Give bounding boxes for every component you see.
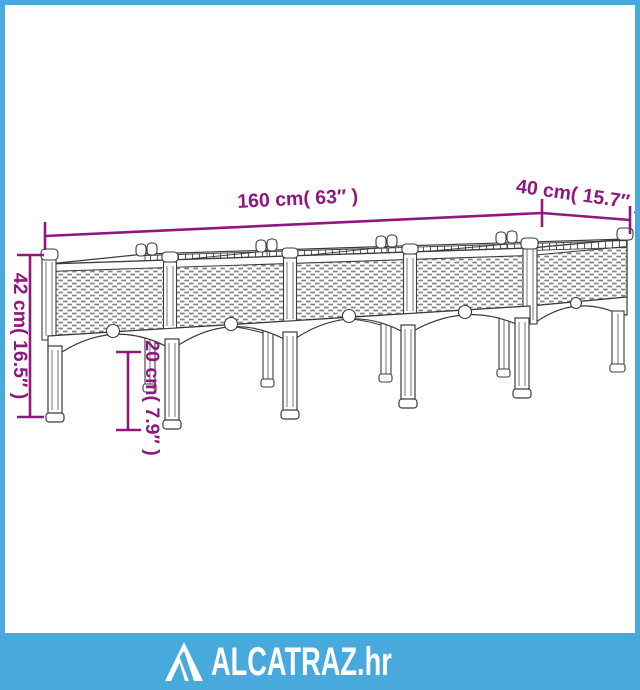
alcatraz-logo-icon xyxy=(163,639,209,685)
footer-banner: ALCATRAZ.hr xyxy=(0,633,640,690)
dimension-depth-label: 40 cm( 15.7″ ) xyxy=(515,175,640,214)
planter-right-face xyxy=(530,239,627,372)
planter-diagram: 160 cm( 63″ ) 40 cm( 15.7″ ) 42 cm( 16.5… xyxy=(0,0,640,690)
dimension-height-label: 42 cm( 16.5″ ) xyxy=(9,273,31,399)
product-diagram-page: 160 cm( 63″ ) 40 cm( 15.7″ ) 42 cm( 16.5… xyxy=(0,0,640,690)
brand-text: ALCATRAZ.hr xyxy=(211,642,392,682)
dimension-length-label: 160 cm( 63″ ) xyxy=(237,185,359,213)
dimension-leg-height xyxy=(116,352,141,430)
dimension-leg-height-label: 20 cm( 7.9″ ) xyxy=(141,340,163,456)
